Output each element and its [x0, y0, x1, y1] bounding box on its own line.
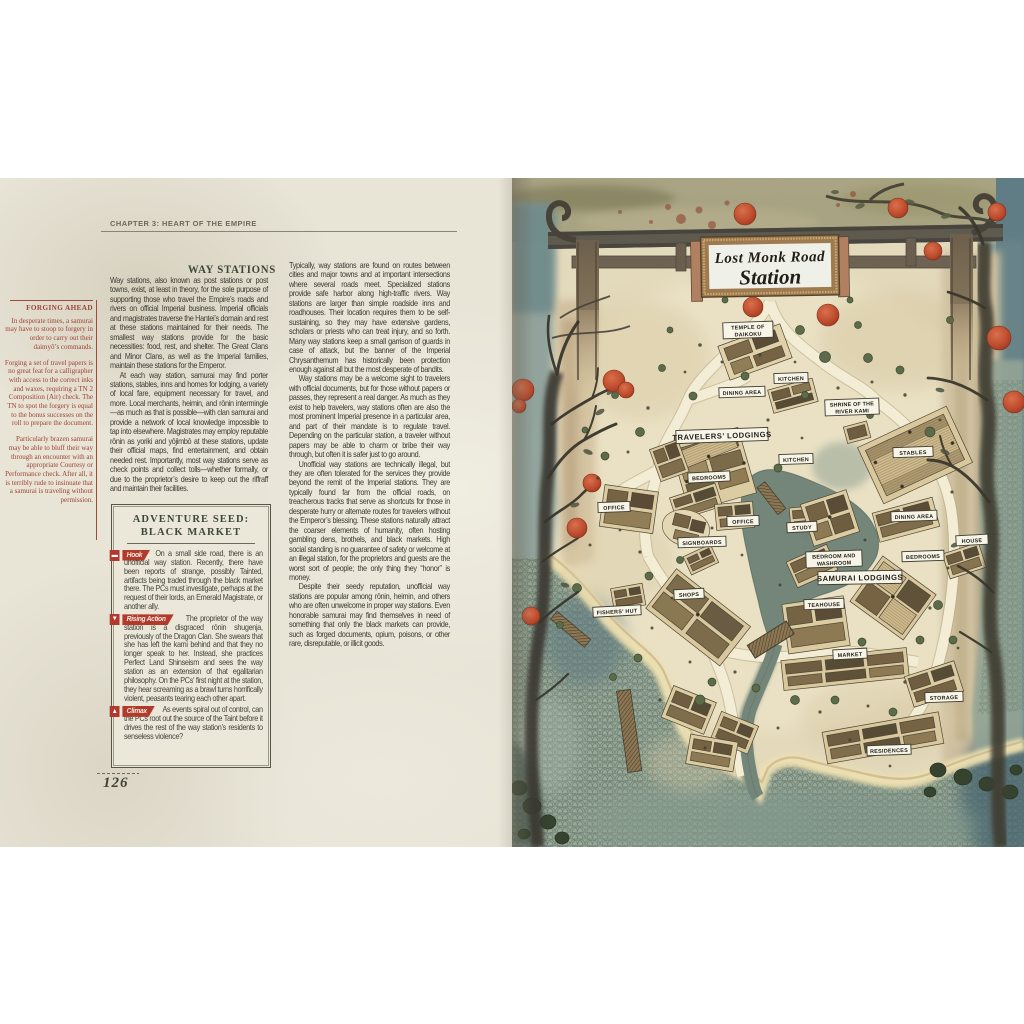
svg-text:TEMPLE OF: TEMPLE OF — [731, 324, 765, 331]
svg-text:HOUSE: HOUSE — [962, 538, 983, 545]
svg-text:TEAHOUSE: TEAHOUSE — [808, 602, 841, 609]
svg-text:RIVER KAMI: RIVER KAMI — [835, 408, 869, 415]
svg-text:KITCHEN: KITCHEN — [783, 457, 809, 464]
svg-text:STABLES: STABLES — [899, 450, 927, 457]
svg-text:SHOPS: SHOPS — [679, 592, 700, 599]
svg-text:DAIKOKU: DAIKOKU — [734, 332, 761, 339]
svg-text:STUDY: STUDY — [792, 525, 812, 532]
svg-text:Station: Station — [739, 264, 801, 289]
svg-text:KITCHEN: KITCHEN — [778, 376, 804, 383]
svg-text:STORAGE: STORAGE — [930, 695, 959, 702]
svg-text:SAMURAI LODGINGS: SAMURAI LODGINGS — [817, 573, 903, 584]
svg-text:WASHROOM: WASHROOM — [817, 560, 852, 567]
svg-text:OFFICE: OFFICE — [732, 519, 754, 526]
svg-text:BEDROOMS: BEDROOMS — [906, 554, 940, 561]
svg-text:OFFICE: OFFICE — [603, 505, 625, 512]
